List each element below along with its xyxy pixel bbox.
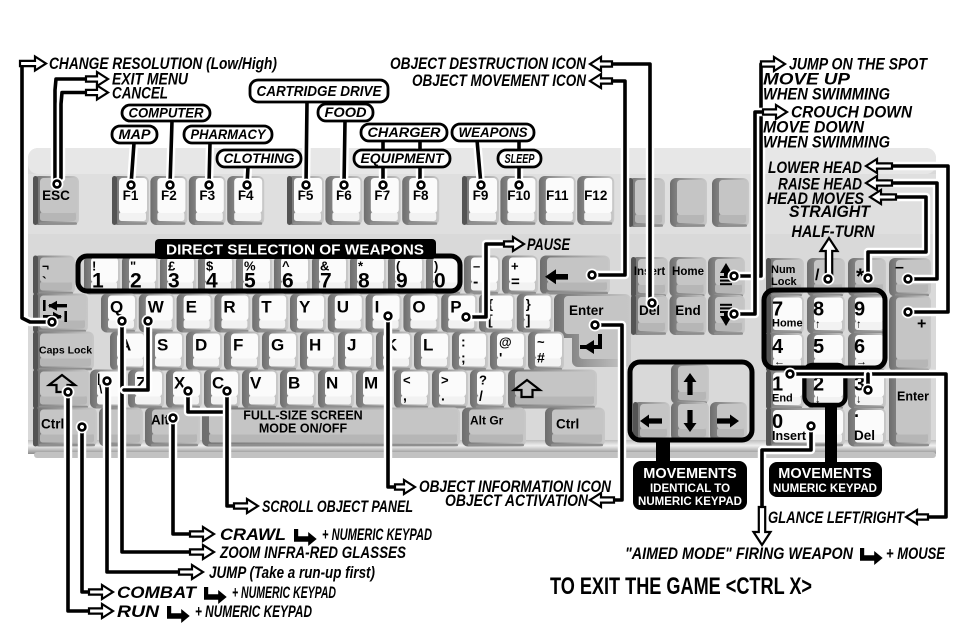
svg-text:S: S [157,336,168,355]
svg-text:U: U [337,298,349,317]
svg-text:V: V [250,374,262,393]
svg-text:OBJECT MOVEMENT ICON: OBJECT MOVEMENT ICON [412,72,587,90]
svg-text:CLOTHING: CLOTHING [224,151,295,166]
svg-text:·: · [854,406,860,426]
svg-text:@: @ [499,335,512,350]
svg-text:MOVEMENTS: MOVEMENTS [778,466,872,482]
svg-text:↑: ↑ [815,319,821,331]
svg-text:Y: Y [299,298,311,317]
svg-text:RUN: RUN [117,603,160,621]
svg-text:↑: ↑ [856,319,862,331]
svg-text:WHEN SWIMMING: WHEN SWIMMING [763,134,890,152]
svg-text:>: > [441,373,449,388]
svg-text:Del: Del [854,428,875,443]
svg-text:+ NUMERIC KEYPAD: + NUMERIC KEYPAD [232,584,336,602]
svg-text:P: P [450,298,461,317]
svg-text:;: ; [461,350,466,366]
svg-text:/: / [815,267,820,284]
svg-text:EQUIPMENT: EQUIPMENT [361,151,446,166]
svg-text:M: M [364,374,378,393]
svg-text:Enter: Enter [569,303,604,318]
svg-text:G: G [271,336,284,355]
svg-text:F: F [233,336,243,355]
svg-text:↓: ↓ [856,394,862,406]
svg-text:E: E [186,298,197,317]
svg-text:SLEEP: SLEEP [505,152,535,166]
svg-text:NUMERIC KEYPAD: NUMERIC KEYPAD [773,483,877,495]
svg-text:+: + [917,316,926,333]
svg-text:B: B [288,374,300,393]
svg-text:4: 4 [772,336,784,358]
svg-text:?: ? [479,373,487,388]
svg-text:Ctrl: Ctrl [41,417,64,432]
svg-text:Insert: Insert [772,429,807,443]
svg-text:STRAIGHT: STRAIGHT [789,203,872,221]
svg-text:IDENTICAL TO: IDENTICAL TO [650,483,730,495]
svg-text:NUMERIC KEYPAD: NUMERIC KEYPAD [638,496,742,508]
svg-text:"AIMED MODE" FIRING WEAPON: "AIMED MODE" FIRING WEAPON [625,545,854,563]
svg-text:J: J [347,336,356,355]
svg-text::: : [461,334,466,350]
svg-text:TO EXIT THE GAME <CTRL X>: TO EXIT THE GAME <CTRL X> [550,573,812,600]
svg-text:/: / [479,388,483,404]
svg-text:FOOD: FOOD [325,105,367,120]
svg-text:Home: Home [772,318,803,330]
svg-text:-: - [473,274,478,291]
svg-text:WEAPONS: WEAPONS [459,125,528,140]
svg-text:PAUSE: PAUSE [527,235,570,254]
svg-text:SCROLL OBJECT PANEL: SCROLL OBJECT PANEL [262,498,413,516]
svg-text:~: ~ [537,335,545,350]
svg-text:CANCEL: CANCEL [112,84,168,103]
svg-text:JUMP (Take a run-up first): JUMP (Take a run-up first) [209,564,375,582]
svg-text:,: , [403,388,407,404]
svg-text:LOWER HEAD: LOWER HEAD [768,159,862,177]
svg-text:PHARMACY: PHARMACY [191,127,268,142]
svg-text:GLANCE LEFT/RIGHT: GLANCE LEFT/RIGHT [768,509,906,527]
svg-text:MAP: MAP [119,127,152,142]
svg-text:}: } [526,297,531,312]
svg-text:Num: Num [771,264,796,276]
svg-text:9: 9 [854,299,865,321]
svg-text:End: End [675,303,701,318]
svg-text:W: W [148,298,165,317]
svg-text:Alt Gr: Alt Gr [470,414,504,428]
svg-text:+ MOUSE: + MOUSE [886,545,946,563]
svg-text:HALF-TURN: HALF-TURN [792,223,876,241]
svg-text:COMPUTER: COMPUTER [129,106,204,121]
svg-text:Caps Lock: Caps Lock [39,345,92,357]
svg-text:5: 5 [813,336,824,358]
svg-text:MODE ON/OFF: MODE ON/OFF [259,422,348,436]
svg-text:CHARGER: CHARGER [368,125,441,140]
svg-text:R: R [223,298,235,317]
svg-text:F12: F12 [584,188,607,203]
svg-text:–: – [473,259,480,274]
svg-text:.: . [441,388,445,404]
svg-text:#: # [537,350,545,366]
svg-text:=: = [511,274,520,291]
svg-text:H: H [309,336,321,355]
svg-text:¬: ¬ [42,260,49,274]
svg-text:F11: F11 [546,188,569,203]
svg-text:–: – [895,259,904,276]
svg-text:<: < [403,373,411,388]
svg-text:+: + [511,259,519,274]
svg-text:]: ] [526,312,531,328]
svg-text:DIRECT SELECTION OF WEAPONS: DIRECT SELECTION OF WEAPONS [166,242,424,259]
svg-text:': ' [499,350,502,366]
svg-text:L: L [423,336,433,355]
svg-text:COMBAT: COMBAT [117,584,198,602]
svg-text:OBJECT DESTRUCTION ICON: OBJECT DESTRUCTION ICON [390,55,587,73]
svg-text:Alt: Alt [151,413,170,428]
svg-text:8: 8 [813,299,824,321]
svg-text:Q: Q [110,298,123,317]
svg-text:Home: Home [672,266,704,278]
svg-text:MOVEMENTS: MOVEMENTS [643,466,737,482]
svg-text:ZOOM INFRA-RED GLASSES: ZOOM INFRA-RED GLASSES [219,544,406,562]
svg-text:CARTRIDGE DRIVE: CARTRIDGE DRIVE [257,83,383,100]
svg-text:FULL-SIZE SCREEN: FULL-SIZE SCREEN [243,409,362,423]
svg-text:N: N [326,374,338,393]
svg-text:WHEN SWIMMING: WHEN SWIMMING [763,86,890,104]
svg-text:+ NUMERIC KEYPAD: + NUMERIC KEYPAD [195,603,312,621]
svg-text:+ NUMERIC KEYPAD: + NUMERIC KEYPAD [322,526,432,544]
svg-text:Ctrl: Ctrl [556,417,579,432]
svg-text:OBJECT ACTIVATION: OBJECT ACTIVATION [445,492,589,510]
svg-text:O: O [412,298,425,317]
svg-text:D: D [195,336,207,355]
svg-text:I: I [375,298,380,317]
svg-text:End: End [772,393,793,405]
svg-text:`: ` [42,274,47,290]
svg-text:CRAWL: CRAWL [220,526,286,544]
svg-text:6: 6 [854,336,865,358]
svg-text:Lock: Lock [771,276,798,288]
svg-text:T: T [261,298,272,317]
svg-text:Enter: Enter [897,390,929,404]
